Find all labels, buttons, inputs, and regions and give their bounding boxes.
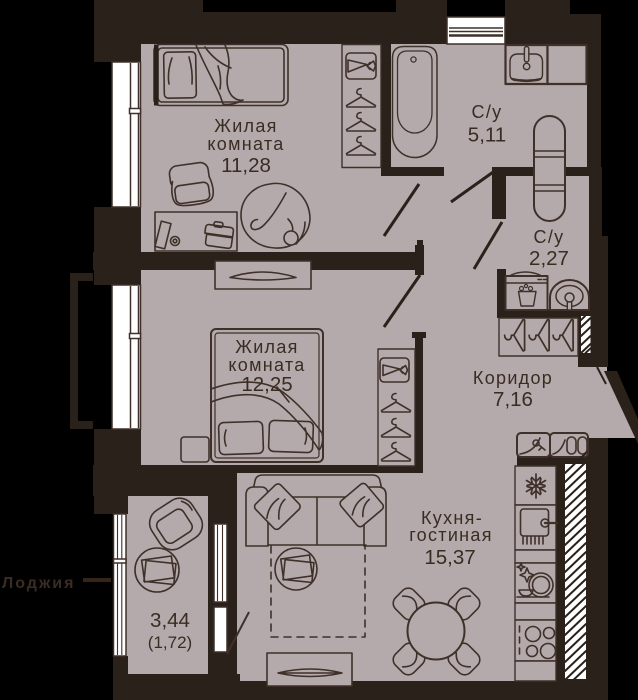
svg-text:12,25: 12,25	[241, 373, 292, 396]
svg-text:2,27: 2,27	[529, 247, 569, 270]
svg-text:Коридор: Коридор	[473, 368, 553, 388]
svg-text:11,28: 11,28	[221, 154, 271, 177]
svg-text:Жилая: Жилая	[214, 116, 277, 136]
svg-text:комната: комната	[228, 355, 305, 375]
svg-text:Жилая: Жилая	[235, 337, 298, 357]
svg-text:Лоджия: Лоджия	[2, 575, 75, 592]
svg-text:15,37: 15,37	[424, 546, 475, 569]
svg-text:гостиная: гостиная	[409, 525, 493, 545]
svg-text:(1,72): (1,72)	[148, 633, 192, 652]
svg-text:комната: комната	[207, 134, 284, 154]
svg-text:5,11: 5,11	[468, 124, 506, 147]
svg-text:3,44: 3,44	[150, 609, 190, 632]
svg-text:С/у: С/у	[472, 102, 503, 122]
svg-text:С/у: С/у	[534, 227, 565, 247]
svg-text:7,16: 7,16	[493, 388, 533, 411]
